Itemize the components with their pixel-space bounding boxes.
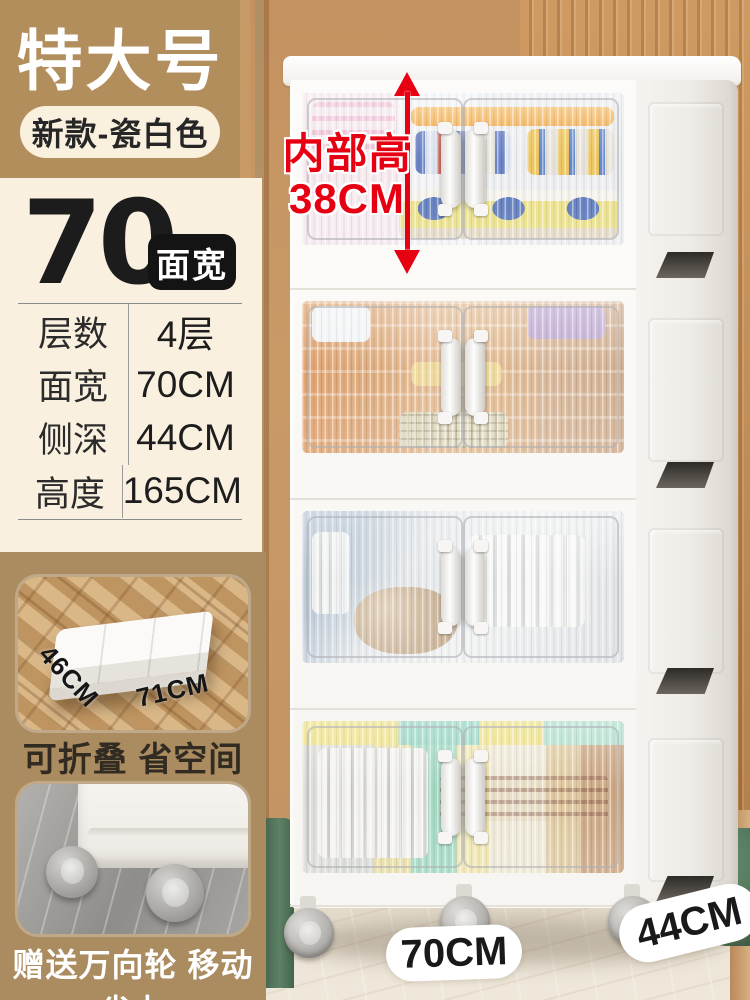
door-handle-icon xyxy=(439,540,487,634)
width-tag: 面宽 xyxy=(148,234,236,290)
side-recess-panel xyxy=(648,102,724,236)
cabinet-corner xyxy=(78,784,248,868)
cabinet-side-panel xyxy=(630,80,738,908)
folded-box-photo: 46CM 71CM xyxy=(18,577,248,730)
table-row: 侧深 44CM xyxy=(18,411,242,464)
spec-panel: 70 面宽 层数 4层 面宽 70CM 侧深 44CM 高度 165CM xyxy=(0,178,262,552)
measure-arrow-down-icon xyxy=(394,250,420,274)
inner-height-annotation: 内部高 38CM xyxy=(282,131,412,222)
inner-height-label: 内部高 xyxy=(282,131,412,176)
side-recess-panel xyxy=(648,738,724,882)
cabinet-tier-3 xyxy=(290,498,636,710)
door-handle-icon xyxy=(439,330,487,424)
floor-width-label: 70CM xyxy=(385,924,523,983)
table-row: 高度 165CM xyxy=(18,465,242,518)
product-listing-image: 内部高 38CM 70CM 44CM 特大号 新款-瓷白色 70 面宽 层数 4… xyxy=(0,0,750,1000)
size-badge: 特大号 xyxy=(0,8,240,104)
caster-wheel-icon xyxy=(284,908,334,958)
feature-panel: 46CM 71CM 可折叠 省空间 赠送万向轮 移动省力 xyxy=(0,552,266,1000)
cabinet-tier-2 xyxy=(290,288,636,500)
side-recess-panel xyxy=(648,528,724,674)
wheels-photo xyxy=(18,784,248,934)
door-handle-icon xyxy=(439,122,487,216)
cabinet-tier-4 xyxy=(290,708,636,907)
side-recess-panel xyxy=(648,318,724,462)
inner-height-value: 38CM xyxy=(282,176,412,221)
caster-wheel-icon xyxy=(146,864,204,922)
tier-4-window xyxy=(302,721,624,873)
side-handle-cutout-icon xyxy=(656,462,714,488)
size-badge-block: 特大号 新款-瓷白色 xyxy=(0,0,240,178)
side-handle-cutout-icon xyxy=(656,252,714,278)
divider xyxy=(18,519,242,520)
tier-3-window xyxy=(302,511,624,663)
door-handle-icon xyxy=(439,750,487,844)
table-row: 层数 4层 xyxy=(18,304,242,358)
variant-badge: 新款-瓷白色 xyxy=(20,106,220,158)
fold-caption: 可折叠 省空间 xyxy=(0,732,266,781)
table-row: 面宽 70CM xyxy=(18,358,242,411)
wheels-caption: 赠送万向轮 移动省力 xyxy=(0,940,266,1000)
caster-wheel-icon xyxy=(46,846,98,898)
spec-table: 层数 4层 面宽 70CM 侧深 44CM 高度 165CM xyxy=(18,304,242,518)
tier-2-window xyxy=(302,301,624,453)
